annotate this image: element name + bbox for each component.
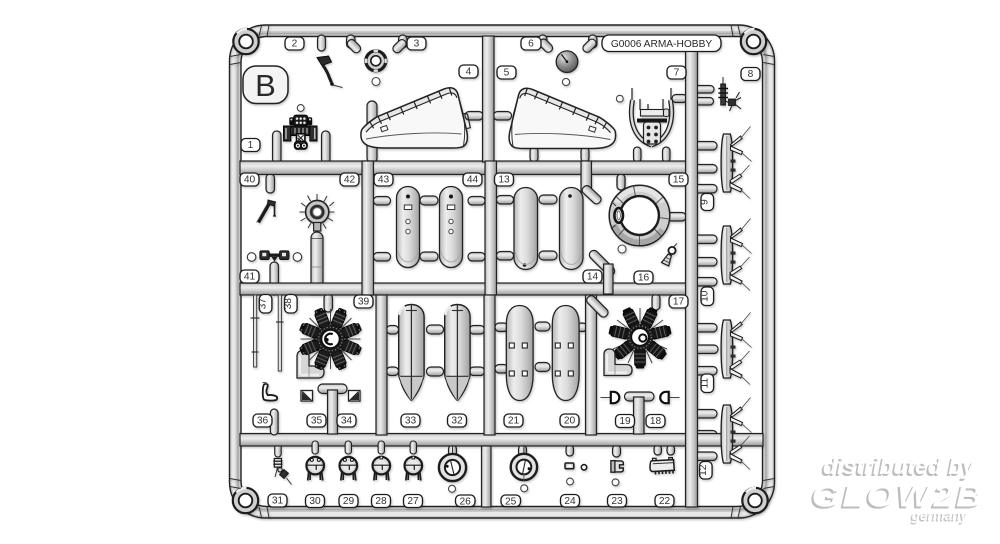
svg-text:11: 11 (699, 378, 710, 389)
svg-text:distributed by: distributed by (823, 453, 976, 479)
svg-text:42: 42 (344, 175, 356, 186)
svg-text:21: 21 (508, 416, 520, 427)
svg-text:5: 5 (504, 68, 510, 79)
svg-text:43: 43 (378, 175, 390, 186)
svg-text:9: 9 (699, 199, 710, 205)
svg-text:40: 40 (244, 175, 256, 186)
svg-text:16: 16 (638, 273, 650, 284)
svg-text:6: 6 (528, 39, 534, 50)
svg-text:7: 7 (674, 68, 680, 79)
svg-text:17: 17 (673, 297, 685, 308)
svg-text:38: 38 (283, 298, 294, 310)
svg-text:24: 24 (564, 496, 576, 507)
svg-text:germany: germany (911, 508, 970, 523)
svg-text:44: 44 (467, 175, 479, 186)
svg-text:13: 13 (498, 175, 510, 186)
svg-text:39: 39 (358, 297, 370, 308)
svg-text:2: 2 (292, 39, 298, 50)
svg-text:3: 3 (414, 39, 420, 50)
svg-text:B: B (255, 68, 276, 103)
svg-text:1: 1 (248, 140, 254, 151)
svg-text:41: 41 (244, 272, 256, 283)
svg-text:29: 29 (343, 496, 355, 507)
svg-text:26: 26 (460, 496, 472, 507)
svg-text:37: 37 (258, 298, 269, 310)
svg-text:33: 33 (405, 416, 417, 427)
svg-text:18: 18 (650, 416, 662, 427)
svg-text:20: 20 (564, 416, 576, 427)
svg-text:4: 4 (466, 67, 472, 78)
svg-text:35: 35 (311, 416, 323, 427)
svg-text:G0006 ARMA-HOBBY: G0006 ARMA-HOBBY (611, 39, 713, 50)
svg-text:28: 28 (375, 496, 387, 507)
svg-text:30: 30 (309, 496, 321, 507)
svg-text:14: 14 (587, 272, 599, 283)
svg-text:23: 23 (611, 496, 623, 507)
svg-text:25: 25 (505, 496, 517, 507)
svg-text:15: 15 (673, 175, 685, 186)
svg-text:10: 10 (699, 290, 710, 302)
svg-text:8: 8 (748, 69, 754, 80)
svg-text:34: 34 (341, 416, 353, 427)
svg-text:22: 22 (659, 496, 671, 507)
svg-text:19: 19 (619, 416, 631, 427)
svg-text:27: 27 (407, 496, 419, 507)
svg-text:31: 31 (272, 496, 284, 507)
svg-text:36: 36 (257, 416, 269, 427)
svg-text:12: 12 (698, 464, 709, 476)
svg-text:32: 32 (451, 416, 463, 427)
